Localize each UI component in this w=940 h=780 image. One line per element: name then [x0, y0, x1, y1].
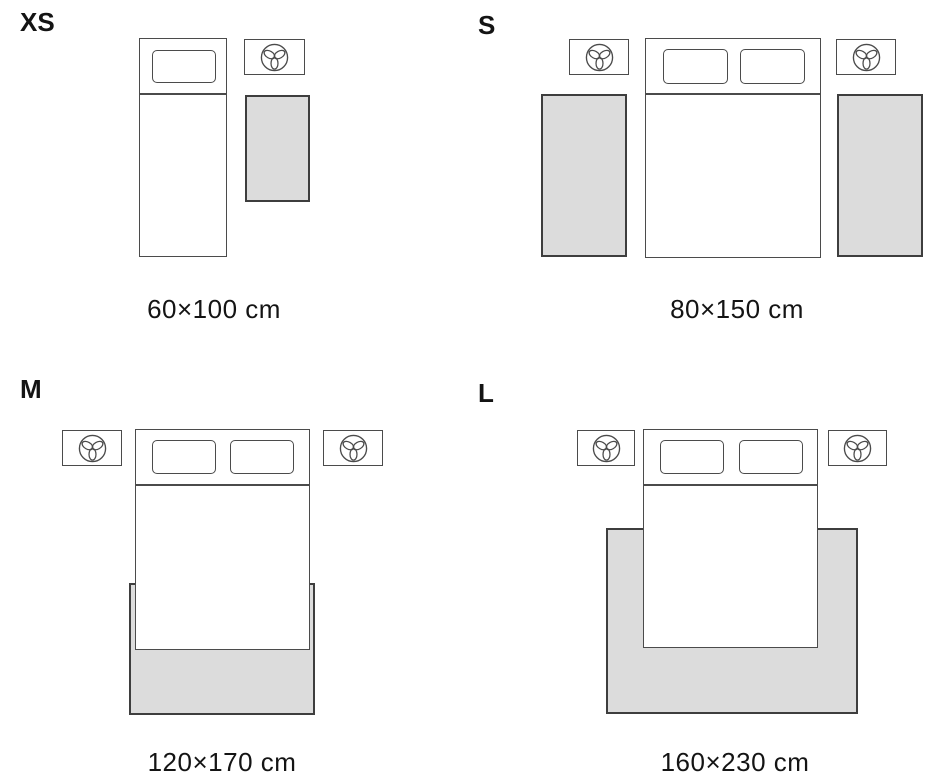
size-dimensions-l: 160×230 cm — [661, 749, 810, 775]
nightstand-right — [836, 39, 896, 75]
size-code-m: M — [20, 376, 42, 402]
plant-icon — [591, 433, 622, 464]
rug-s-right — [837, 94, 923, 257]
nightstand — [244, 39, 305, 75]
bed-double — [645, 38, 821, 258]
plant-icon — [842, 433, 873, 464]
pillow-left — [152, 440, 216, 474]
rug-size-guide: XS 60×100 cm S — [0, 0, 940, 780]
rug-s-left — [541, 94, 627, 257]
plant-icon — [77, 433, 108, 464]
bed-headboard-divider — [136, 484, 309, 486]
bed-double — [135, 429, 310, 650]
pillow — [152, 50, 216, 83]
pillow-right — [230, 440, 294, 474]
plant-icon — [338, 433, 369, 464]
bed-single — [139, 38, 227, 257]
nightstand-left — [62, 430, 122, 466]
bed-double — [643, 429, 818, 648]
nightstand-right — [323, 430, 383, 466]
plant-icon — [584, 42, 615, 73]
bed-headboard-divider — [140, 93, 226, 95]
plant-icon — [851, 42, 882, 73]
size-code-s: S — [478, 12, 495, 38]
pillow-left — [663, 49, 728, 84]
nightstand-left — [569, 39, 629, 75]
nightstand-right — [828, 430, 887, 466]
size-code-l: L — [478, 380, 494, 406]
pillow-left — [660, 440, 724, 474]
bed-headboard-divider — [644, 484, 817, 486]
rug-xs — [245, 95, 310, 202]
pillow-right — [739, 440, 803, 474]
pillow-right — [740, 49, 805, 84]
size-dimensions-xs: 60×100 cm — [147, 296, 281, 322]
size-dimensions-s: 80×150 cm — [670, 296, 804, 322]
bed-headboard-divider — [646, 93, 820, 95]
size-dimensions-m: 120×170 cm — [148, 749, 297, 775]
nightstand-left — [577, 430, 635, 466]
plant-icon — [259, 42, 290, 73]
size-code-xs: XS — [20, 9, 55, 35]
